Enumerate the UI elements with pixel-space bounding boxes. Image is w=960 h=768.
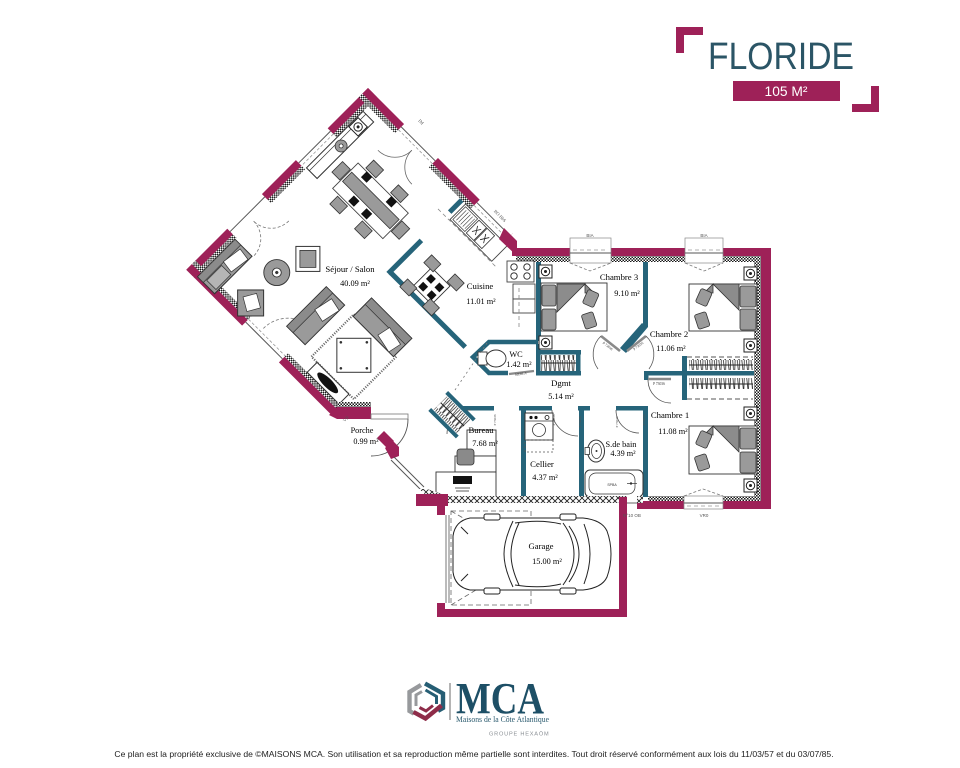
svg-text:Porche: Porche bbox=[351, 426, 374, 435]
svg-text:Cellier: Cellier bbox=[530, 459, 554, 469]
svg-text:Ce plan est la propriété exclu: Ce plan est la propriété exclusive de ©M… bbox=[114, 749, 833, 759]
svg-text:40.09 m²: 40.09 m² bbox=[340, 279, 370, 288]
svg-text:N°10 OB: N°10 OB bbox=[623, 513, 641, 518]
svg-text:Maisons de la Côte Atlantique: Maisons de la Côte Atlantique bbox=[456, 715, 549, 724]
svg-text:P 73036: P 73036 bbox=[642, 414, 646, 425]
svg-text:4.39 m²: 4.39 m² bbox=[610, 449, 636, 458]
svg-text:S.de bain: S.de bain bbox=[606, 440, 638, 449]
svg-text:7.68 m²: 7.68 m² bbox=[472, 439, 498, 448]
svg-text:11.01 m²: 11.01 m² bbox=[466, 297, 496, 306]
svg-text:P 73036: P 73036 bbox=[493, 414, 497, 425]
svg-text:Chambre 2: Chambre 2 bbox=[650, 329, 688, 339]
svg-text:0.99 m²: 0.99 m² bbox=[353, 437, 379, 446]
svg-text:Dgmt: Dgmt bbox=[551, 378, 571, 388]
svg-text:Chambre 1: Chambre 1 bbox=[651, 410, 689, 420]
svg-text:Bureau: Bureau bbox=[468, 425, 494, 435]
svg-text:P 73036: P 73036 bbox=[578, 416, 582, 427]
svg-text:WC: WC bbox=[509, 350, 523, 359]
svg-text:11.08 m²: 11.08 m² bbox=[658, 427, 688, 436]
svg-text:5.14 m²: 5.14 m² bbox=[548, 392, 574, 401]
svg-text:Cuisine: Cuisine bbox=[467, 281, 494, 291]
svg-text:15.00 m²: 15.00 m² bbox=[532, 557, 562, 566]
svg-text:11.06 m²: 11.06 m² bbox=[656, 344, 686, 353]
svg-text:VR0: VR0 bbox=[700, 513, 709, 518]
svg-text:Séjour / Salon: Séjour / Salon bbox=[325, 264, 375, 274]
svg-text:BIA: BIA bbox=[586, 233, 593, 238]
svg-text:FLORIDE: FLORIDE bbox=[708, 36, 854, 78]
svg-text:SPBA: SPBA bbox=[607, 483, 617, 487]
svg-text:P 73036: P 73036 bbox=[615, 416, 619, 427]
svg-text:BIA: BIA bbox=[700, 233, 707, 238]
svg-text:Chambre 3: Chambre 3 bbox=[600, 272, 638, 282]
svg-text:105 M²: 105 M² bbox=[765, 84, 808, 99]
svg-text:4.37 m²: 4.37 m² bbox=[532, 473, 558, 482]
svg-text:9.10 m²: 9.10 m² bbox=[614, 289, 640, 298]
svg-text:GROUPE HEXAŌM: GROUPE HEXAŌM bbox=[489, 731, 549, 738]
svg-text:1.42 m²: 1.42 m² bbox=[506, 360, 532, 369]
svg-text:Garage: Garage bbox=[528, 541, 553, 551]
svg-text:P 73036: P 73036 bbox=[653, 382, 665, 386]
